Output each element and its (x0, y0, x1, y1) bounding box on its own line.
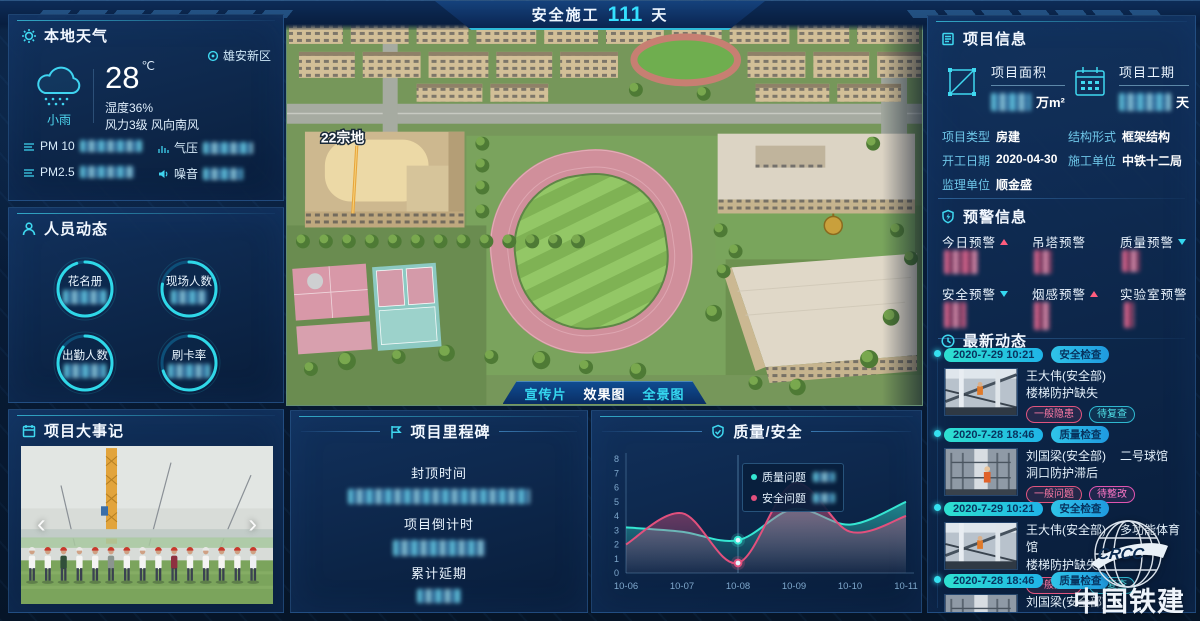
safety-series-dot (751, 495, 757, 501)
flag-icon (388, 424, 404, 440)
hazard-tag: 一般隐患 (1026, 406, 1082, 423)
update-category-badge: 安全检查 (1051, 500, 1109, 517)
location-pin-icon (207, 50, 219, 62)
gauge-label: 现场人数 (156, 273, 222, 289)
school-building (305, 132, 464, 228)
topping-time-value-blurred (348, 489, 530, 504)
countdown: 项目倒计时 (291, 514, 587, 556)
svg-text:10-06: 10-06 (614, 581, 638, 592)
gauge-onsite: 现场人数 (156, 256, 222, 322)
warn-lab: 实验室预警 (1120, 284, 1188, 303)
divider (811, 431, 911, 432)
humidity-label: 湿度36% (105, 99, 153, 116)
quality-tooltip-value-blurred (813, 472, 835, 482)
svg-text:10-11: 10-11 (894, 581, 918, 592)
calendar-icon (1070, 62, 1110, 111)
trend-up-icon (1000, 239, 1008, 245)
field-supervisor: 监理单位顺金盛 (942, 176, 1032, 193)
field-structure-type: 结构形式框架结构 (1068, 128, 1170, 145)
warn-today-value-blurred (944, 250, 978, 274)
event-photo[interactable]: ‹ › (21, 446, 273, 604)
field-start-date: 开工日期2020-04-30 (942, 152, 1057, 169)
swipe-rate-value-blurred (168, 364, 210, 378)
delay-total-label: 累计延期 (411, 566, 467, 581)
project-duration-value-blurred (1119, 93, 1171, 111)
update-person: 王大伟(安全部) (1026, 369, 1106, 383)
wind-label: 风力3级 风向南风 (105, 116, 199, 133)
trend-up-icon (1090, 291, 1098, 297)
trend-down-icon (1178, 239, 1186, 245)
attendance-value-blurred (64, 364, 106, 378)
warn-quality-value-blurred (1122, 250, 1140, 272)
safety-tooltip-value-blurred (813, 493, 835, 503)
svg-text:1: 1 (614, 554, 619, 564)
site-3d-view[interactable]: 22宗地 宣传片 效果图 全景图 (286, 15, 923, 406)
logo-text-cn: 中国铁建 (1073, 587, 1185, 617)
svg-text:3: 3 (614, 525, 619, 535)
warn-crane: 吊塔预警 (1032, 232, 1086, 251)
gauge-attendance: 出勤人数 (52, 330, 118, 396)
noise-metric: 噪音 (157, 165, 243, 182)
quality-series-dot (751, 474, 757, 480)
pressure-value-blurred (203, 142, 253, 154)
project-duration-label: 项目工期 (1119, 62, 1189, 86)
svg-text:6: 6 (614, 483, 619, 493)
person-icon (21, 221, 37, 237)
svg-text:0: 0 (614, 568, 619, 578)
project-info-title: 项目信息 (963, 28, 1027, 49)
update-thumbnail (944, 448, 1018, 496)
update-date-badge: 2020-7-29 10:21 (944, 348, 1043, 362)
svg-text:7: 7 (614, 468, 619, 478)
update-thumbnail (944, 522, 1018, 570)
delay-value-blurred (417, 589, 461, 603)
project-duration-unit: 天 (1176, 92, 1189, 111)
pressure-metric: 气压 (157, 139, 253, 156)
milestone-panel: 项目里程碑 封顶时间 项目倒计时 累计延期 (290, 410, 588, 613)
warn-quality: 质量预警 (1120, 232, 1186, 251)
location-selector[interactable]: 雄安新区 (207, 47, 271, 64)
gauge-swipe-rate: 刷卡率 (156, 330, 222, 396)
pm25-label: PM2.5 (40, 165, 75, 179)
warn-safety: 安全预警 (942, 284, 1008, 303)
warn-lab-value-blurred (1124, 302, 1134, 328)
update-category-badge: 安全检查 (1051, 346, 1109, 363)
tab-promo-video[interactable]: 宣传片 (524, 384, 566, 403)
divider (301, 431, 380, 432)
update-place: 二号球馆 (1120, 449, 1168, 463)
banner-suffix: 天 (651, 4, 668, 25)
timeline-line (937, 358, 938, 608)
timeline-dot (934, 430, 941, 437)
gauge-icon (157, 142, 169, 154)
quality-series-label: 质量问题 (762, 469, 806, 485)
safety-series-label: 安全问题 (762, 490, 806, 506)
quality-safety-panel: 质量/安全 01234567810-0610-0710-0810-0910-10… (591, 410, 922, 613)
alert-shield-icon (940, 209, 956, 225)
gauge-label: 出勤人数 (52, 347, 118, 363)
tooltip-quality-row: 质量问题 (751, 469, 835, 485)
warn-smoke: 烟感预警 (1032, 284, 1098, 303)
svg-text:8: 8 (614, 454, 619, 464)
field-project-type: 项目类型房建 (942, 128, 1020, 145)
update-person: 刘国梁(安全部) (1026, 449, 1106, 463)
tab-panorama[interactable]: 全景图 (643, 384, 685, 403)
speaker-icon (157, 168, 169, 180)
countdown-value-blurred (393, 540, 485, 556)
divider (499, 431, 578, 432)
location-label: 雄安新区 (223, 47, 271, 64)
milestone-panel-title: 项目里程碑 (411, 421, 491, 442)
delay-total: 累计延期 (291, 563, 587, 603)
aerial-render: 22宗地 (287, 16, 922, 405)
milestone-photo-panel: 项目大事记 (8, 409, 284, 613)
photo-next-button[interactable]: › (248, 511, 257, 537)
update-date-badge: 2020-7-28 18:46 (944, 428, 1043, 442)
sun-icon (21, 28, 37, 44)
update-thumbnail (944, 594, 1018, 613)
field-contractor: 施工单位中铁十二局 (1068, 152, 1182, 169)
trend-down-icon (1000, 291, 1008, 297)
dashboard-root: 安全施工 111 天 (0, 0, 1200, 621)
warn-crane-value-blurred (1034, 250, 1052, 274)
pm10-label: PM 10 (40, 139, 75, 153)
personnel-panel: 人员动态 花名册 现场人数 出勤人数 刷卡率 (8, 207, 284, 403)
weather-panel-title: 本地天气 (44, 25, 108, 46)
status-tag: 待复查 (1089, 406, 1135, 423)
land-label-text: 22宗地 (321, 130, 364, 146)
events-panel-title: 项目大事记 (44, 420, 124, 441)
svg-text:4: 4 (614, 511, 619, 521)
onsite-value-blurred (171, 290, 207, 304)
chart-tooltip: 质量问题 安全问题 (742, 463, 844, 512)
update-item-1[interactable]: 2020-7-29 10:21 安全检查 王大伟(安全部) 楼梯防护缺失 一般隐… (944, 346, 1191, 423)
timeline-dot (934, 576, 941, 583)
divider (938, 198, 1185, 199)
rain-cloud-icon (31, 63, 87, 109)
project-duration-stat: 项目工期 天 (1070, 62, 1189, 111)
update-thumbnail (944, 368, 1018, 416)
warn-safety-value-blurred (944, 302, 966, 328)
photo-prev-button[interactable]: ‹ (37, 511, 46, 537)
pressure-label: 气压 (174, 139, 198, 156)
warn-today: 今日预警 (942, 232, 1008, 251)
update-issue: 楼梯防护缺失 (1026, 386, 1098, 400)
personnel-panel-title: 人员动态 (44, 218, 108, 239)
timeline-dot (934, 504, 941, 511)
logo-text-en: CRCC (1096, 545, 1145, 563)
svg-text:2: 2 (614, 540, 619, 550)
temperature-value: 28℃ (105, 59, 155, 96)
area-measure-icon (942, 62, 982, 111)
banner-prefix: 安全施工 (532, 4, 600, 25)
weather-panel: 本地天气 雄安新区 小雨 28℃ 湿度36% 风力3级 风向南风 PM 10 (8, 14, 284, 201)
timeline-dot (934, 350, 941, 357)
weather-condition: 小雨 (31, 111, 87, 128)
fog-icon (23, 166, 35, 178)
svg-text:10-09: 10-09 (782, 581, 806, 592)
safe-days-count: 111 (608, 3, 644, 27)
svg-text:5: 5 (614, 497, 619, 507)
noise-label: 噪音 (174, 165, 198, 182)
svg-text:10-10: 10-10 (838, 581, 862, 592)
warn-smoke-value-blurred (1034, 302, 1050, 330)
tab-rendering[interactable]: 效果图 (583, 384, 625, 403)
update-issue: 洞口防护滞后 (1026, 466, 1098, 480)
pm10-value-blurred (80, 140, 142, 152)
safe-days-banner: 安全施工 111 天 (435, 1, 765, 30)
svg-text:10-08: 10-08 (726, 581, 750, 592)
divider (93, 69, 94, 123)
warnings-title: 预警信息 (963, 206, 1027, 227)
topping-time: 封顶时间 (291, 463, 587, 504)
group-photo (21, 446, 273, 604)
fog-icon (23, 140, 35, 152)
noise-value-blurred (203, 168, 243, 180)
roster-value-blurred (63, 290, 107, 304)
crcc-logo: CRCC 中国铁建 (1072, 516, 1198, 619)
gauge-label: 刷卡率 (156, 347, 222, 363)
countdown-label: 项目倒计时 (404, 517, 474, 532)
quality-panel-title: 质量/安全 (733, 421, 802, 442)
topping-time-label: 封顶时间 (411, 466, 467, 481)
project-area-stat: 项目面积 万m² (942, 62, 1065, 111)
update-item-2[interactable]: 2020-7-28 18:46 质量检查 刘国梁(安全部)二号球馆 洞口防护滞后… (944, 426, 1191, 503)
gauge-roster: 花名册 (52, 256, 118, 322)
update-date-badge: 2020-7-28 18:46 (944, 574, 1043, 588)
pm25-value-blurred (80, 166, 134, 178)
shield-check-icon (710, 424, 726, 440)
project-area-value-blurred (991, 93, 1031, 111)
project-area-label: 项目面积 (991, 62, 1065, 86)
scene-view-tabs: 宣传片 效果图 全景图 (503, 381, 707, 404)
divider (602, 431, 702, 432)
tooltip-safety-row: 安全问题 (751, 490, 835, 506)
pm10-metric: PM 10 (23, 139, 142, 153)
calendar-icon (21, 423, 37, 439)
pm25-metric: PM2.5 (23, 165, 134, 179)
svg-text:10-07: 10-07 (670, 581, 694, 592)
document-icon (940, 31, 956, 47)
update-date-badge: 2020-7-29 10:21 (944, 502, 1043, 516)
project-area-unit: 万m² (1036, 92, 1065, 111)
update-category-badge: 质量检查 (1051, 426, 1109, 443)
gauge-label: 花名册 (52, 273, 118, 289)
